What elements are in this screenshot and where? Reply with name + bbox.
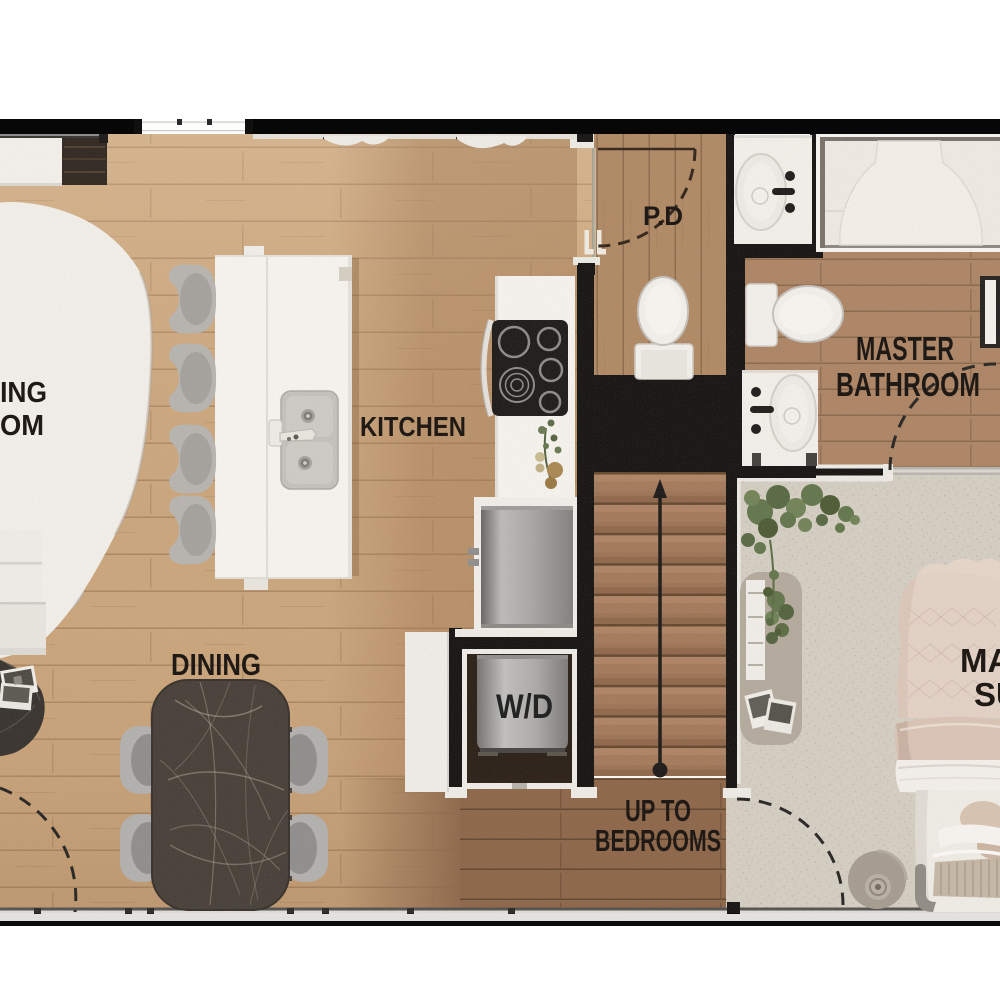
svg-text:P.D: P.D (643, 201, 683, 231)
svg-text:BEDROOMS: BEDROOMS (595, 823, 721, 858)
svg-text:KITCHEN: KITCHEN (360, 411, 466, 442)
svg-text:BATHROOM: BATHROOM (836, 366, 980, 403)
svg-text:LIVING: LIVING (0, 377, 47, 409)
svg-text:DINING: DINING (171, 647, 261, 682)
svg-text:ROOM: ROOM (0, 410, 44, 442)
svg-text:W/D: W/D (496, 688, 553, 726)
svg-text:MAS: MAS (960, 642, 1000, 679)
svg-text:MASTER: MASTER (856, 330, 954, 367)
svg-text:SUI: SUI (974, 676, 1000, 713)
